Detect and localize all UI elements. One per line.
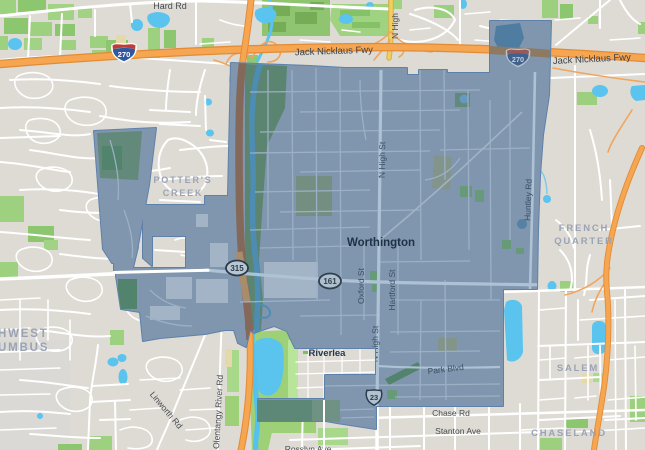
svg-text:270: 270 (118, 50, 131, 59)
svg-text:Oxford St: Oxford St (356, 267, 366, 304)
svg-text:QUARTER: QUARTER (554, 236, 614, 247)
svg-text:Stanton Ave: Stanton Ave (435, 426, 481, 436)
svg-text:Worthington: Worthington (347, 237, 415, 249)
svg-text:FRENCH: FRENCH (559, 223, 609, 234)
svg-text:HWEST: HWEST (0, 328, 49, 340)
svg-text:UMBUS: UMBUS (0, 342, 49, 354)
svg-text:Hard Rd: Hard Rd (153, 1, 187, 11)
svg-text:161: 161 (323, 277, 337, 286)
svg-text:315: 315 (230, 264, 244, 273)
svg-text:N High St: N High St (377, 141, 388, 178)
svg-text:Chase Rd: Chase Rd (432, 408, 470, 418)
svg-text:Hartford St: Hartford St (387, 269, 397, 311)
svg-text:CREEK: CREEK (163, 188, 204, 198)
svg-text:CHASELAND: CHASELAND (531, 428, 607, 439)
svg-text:23: 23 (370, 393, 378, 402)
svg-text:SALEM: SALEM (557, 363, 599, 374)
svg-text:N High: N High (390, 13, 400, 39)
svg-text:Huntley Rd: Huntley Rd (522, 178, 533, 221)
svg-text:Riverlea: Riverlea (309, 348, 347, 359)
svg-text:POTTER'S: POTTER'S (153, 175, 212, 185)
svg-text:270: 270 (512, 55, 524, 64)
